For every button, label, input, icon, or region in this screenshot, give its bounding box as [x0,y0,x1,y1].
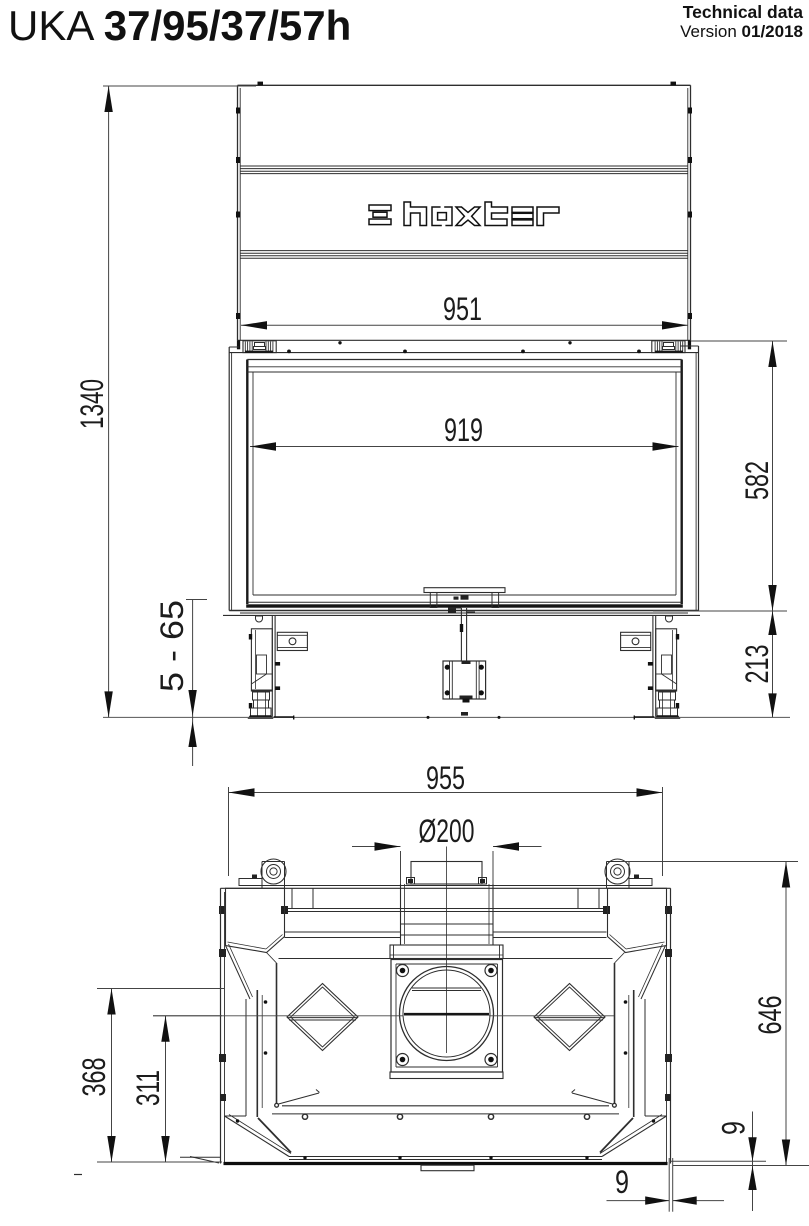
svg-text:UKA 37/95/37/57h: UKA 37/95/37/57h [8,2,351,49]
svg-text:368: 368 [76,1058,112,1097]
svg-text:Ø200: Ø200 [419,813,475,849]
svg-text:9: 9 [716,1121,752,1135]
svg-text:951: 951 [443,291,482,327]
svg-text:Version 01/2018: Version 01/2018 [680,22,803,41]
svg-text:646: 646 [752,996,788,1035]
svg-text:5 - 65: 5 - 65 [154,600,190,692]
svg-text:311: 311 [130,1070,166,1106]
svg-text:919: 919 [444,412,483,448]
svg-text:9: 9 [615,1164,629,1200]
svg-text:582: 582 [739,461,775,500]
svg-text:1340: 1340 [74,379,110,429]
svg-text:955: 955 [426,760,465,796]
svg-text:213: 213 [739,645,775,684]
svg-text:Technical data: Technical data [683,2,804,22]
